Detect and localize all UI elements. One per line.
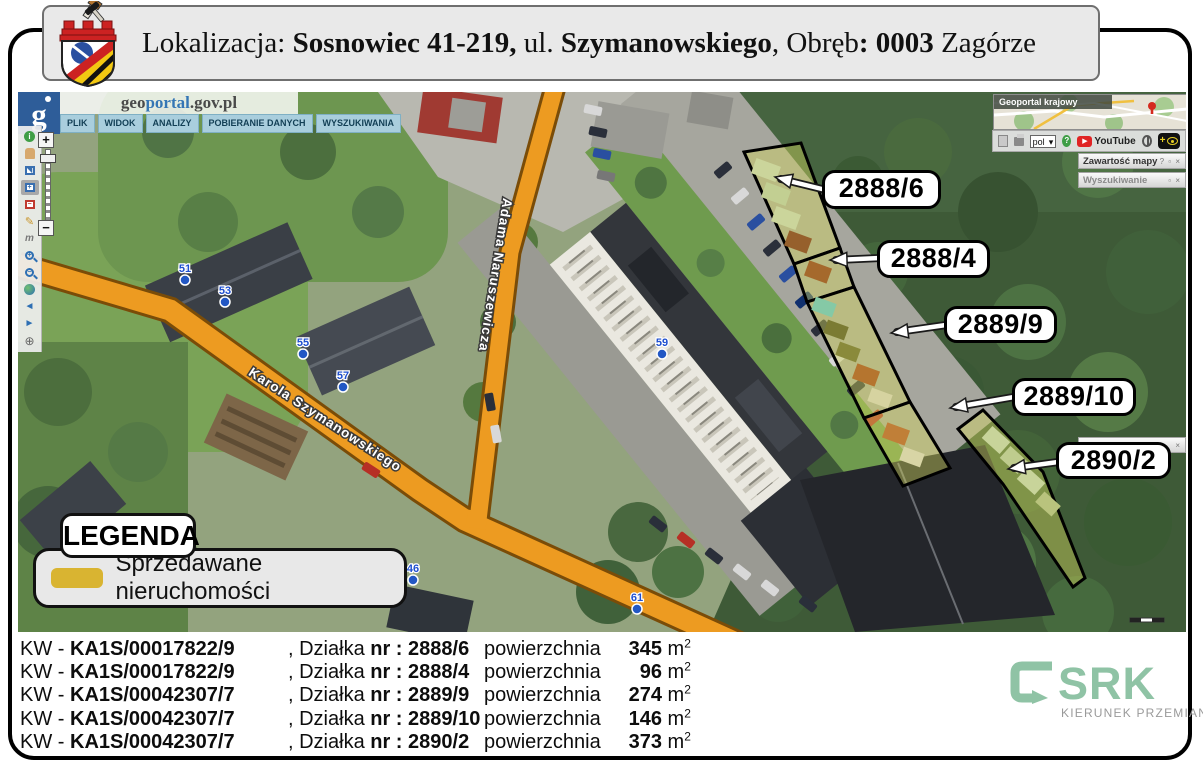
listing-row: KW - KA1S/00042307/7, Działka nr : 2890/… — [20, 731, 691, 754]
parcel-label-2888-6: 2888/6 — [822, 170, 941, 209]
new-window-icon[interactable]: ◥ — [21, 163, 39, 178]
panel-close-icon[interactable]: × — [1175, 441, 1181, 450]
page: Karola Szymanowskiego Adama Naruszewicza… — [0, 0, 1203, 768]
print-icon[interactable] — [1014, 137, 1024, 146]
parcel-area: 373 — [616, 731, 662, 754]
crosshair-icon[interactable]: ⊕ — [21, 333, 39, 348]
svg-text:55: 55 — [297, 337, 309, 349]
parcel-area: 146 — [616, 708, 662, 731]
language-select[interactable]: pol▾ — [1030, 135, 1057, 148]
svg-text:57: 57 — [337, 370, 349, 382]
map-toolbar: i ◥ + − ✎ m + − ◄ ► ⊕ — [18, 126, 42, 352]
geoportal-logo-dot — [45, 96, 51, 102]
srk-logo: SRK KIERUNEK PRZEMIAN — [1008, 660, 1178, 720]
parcel-area: 345 — [616, 638, 662, 661]
parcel-label-2889-9: 2889/9 — [944, 306, 1057, 343]
select-remove-icon[interactable]: − — [21, 197, 39, 212]
youtube-play-icon: ▶ — [1077, 136, 1092, 147]
location-header: Lokalizacja: Sosnowiec 41-219, ul. Szyma… — [42, 5, 1100, 81]
header-label: Lokalizacja: — [142, 27, 293, 60]
info-icon[interactable]: i — [21, 129, 39, 144]
geoportal-brand: geoportal.gov.pl — [60, 92, 298, 114]
legend-item-label: Sprzedawane nieruchomości — [115, 550, 404, 606]
parcel-label-2889-10: 2889/10 — [1012, 378, 1136, 416]
parcel-number: 2888/6 — [408, 638, 469, 660]
kw-number: KA1S/00017822/9 — [70, 638, 235, 660]
legend-color-swatch — [51, 568, 103, 588]
panel-search[interactable]: Wyszukiwanie ▫ × — [1078, 172, 1186, 188]
menu-widok[interactable]: WIDOK — [98, 114, 143, 133]
svg-text:46: 46 — [407, 563, 419, 575]
chevron-down-icon: ▾ — [1049, 136, 1054, 147]
srk-logo-icon — [1008, 660, 1058, 704]
globe-icon[interactable] — [1142, 135, 1152, 147]
listing-row: KW - KA1S/00017822/9, Działka nr : 2888/… — [20, 638, 691, 661]
menu-plik[interactable]: PLIK — [60, 114, 95, 133]
plus-icon: + — [1160, 136, 1166, 146]
svg-text:61: 61 — [631, 592, 643, 604]
header-district: Zagórze — [934, 27, 1036, 60]
svg-text:51: 51 — [179, 263, 191, 275]
zoom-minus-button[interactable]: − — [38, 220, 54, 236]
header-street: Szymanowskiego — [561, 27, 772, 60]
zoom-slider-handle[interactable] — [40, 154, 56, 163]
parcel-label-2890-2: 2890/2 — [1056, 442, 1171, 479]
menu-analizy[interactable]: ANALIZY — [146, 114, 199, 133]
parcel-area: 96 — [616, 661, 662, 684]
svg-text:59: 59 — [656, 337, 668, 349]
sosnowiec-coat-of-arms — [56, 1, 120, 87]
quick-icon-row: pol▾ ? ▶YouTube + — [992, 130, 1186, 152]
parcel-label-2888-4: 2888/4 — [877, 240, 990, 278]
panel-window-icons[interactable]: ? ▫ × — [1160, 157, 1181, 166]
srk-logo-text: SRK — [1058, 664, 1156, 704]
parcel-number: 2889/10 — [408, 708, 480, 730]
draw-pencil-icon[interactable]: ✎ — [21, 214, 39, 229]
overview-map-title: Geoportal krajowy — [994, 95, 1112, 109]
zoom-out-icon[interactable]: − — [21, 265, 39, 280]
select-add-icon[interactable]: + — [21, 180, 39, 195]
help-icon[interactable]: ? — [1062, 135, 1071, 147]
next-view-icon[interactable]: ► — [21, 316, 39, 331]
scale-bar — [1130, 618, 1164, 622]
kw-number: KA1S/00017822/9 — [70, 661, 235, 683]
zoom-plus-button[interactable]: + — [38, 132, 54, 148]
menu-wyszukiwania[interactable]: WYSZUKIWANIA — [316, 114, 402, 133]
parcel-number: 2890/2 — [408, 731, 469, 753]
parcel-area: 274 — [616, 684, 662, 707]
youtube-link[interactable]: ▶YouTube — [1077, 136, 1135, 147]
overview-map[interactable]: Geoportal krajowy — [993, 94, 1186, 130]
menu-pobieranie-danych[interactable]: POBIERANIE DANYCH — [202, 114, 313, 133]
map-viewport[interactable]: Karola Szymanowskiego Adama Naruszewicza… — [18, 92, 1186, 632]
parcel-number: 2888/4 — [408, 661, 469, 683]
zoom-in-icon[interactable]: + — [21, 248, 39, 263]
header-city: Sosnowiec 41-219, — [293, 27, 517, 60]
parcel-listing: KW - KA1S/00017822/9, Działka nr : 2888/… — [20, 638, 691, 754]
kw-number: KA1S/00042307/7 — [70, 731, 235, 753]
listing-row: KW - KA1S/00042307/7, Działka nr : 2889/… — [20, 684, 691, 707]
measure-icon[interactable]: m — [21, 231, 39, 246]
geoportal-menu: PLIK WIDOK ANALIZY POBIERANIE DANYCH WYS… — [60, 114, 401, 133]
kw-number: KA1S/00042307/7 — [70, 708, 235, 730]
eye-icon — [1167, 137, 1178, 145]
full-extent-globe-icon[interactable] — [21, 282, 39, 297]
listing-row: KW - KA1S/00042307/7, Działka nr : 2889/… — [20, 708, 691, 731]
layout-icon[interactable] — [998, 135, 1008, 147]
kw-number: KA1S/00042307/7 — [70, 684, 235, 706]
srk-tagline: KIERUNEK PRZEMIAN — [1061, 706, 1178, 720]
svg-text:53: 53 — [219, 285, 231, 297]
contrast-toggle[interactable]: + — [1158, 133, 1180, 149]
parcel-number: 2889/9 — [408, 684, 469, 706]
header-obreb-number: : 0003 — [859, 27, 934, 60]
panel-map-contents[interactable]: Zawartość mapy ? ▫ × — [1078, 153, 1186, 169]
pan-hand-icon[interactable] — [21, 146, 39, 161]
panel-window-icons[interactable]: ▫ × — [1168, 176, 1181, 185]
previous-view-icon[interactable]: ◄ — [21, 299, 39, 314]
listing-row: KW - KA1S/00017822/9, Działka nr : 2888/… — [20, 661, 691, 684]
legend-title: LEGENDA — [60, 513, 196, 558]
